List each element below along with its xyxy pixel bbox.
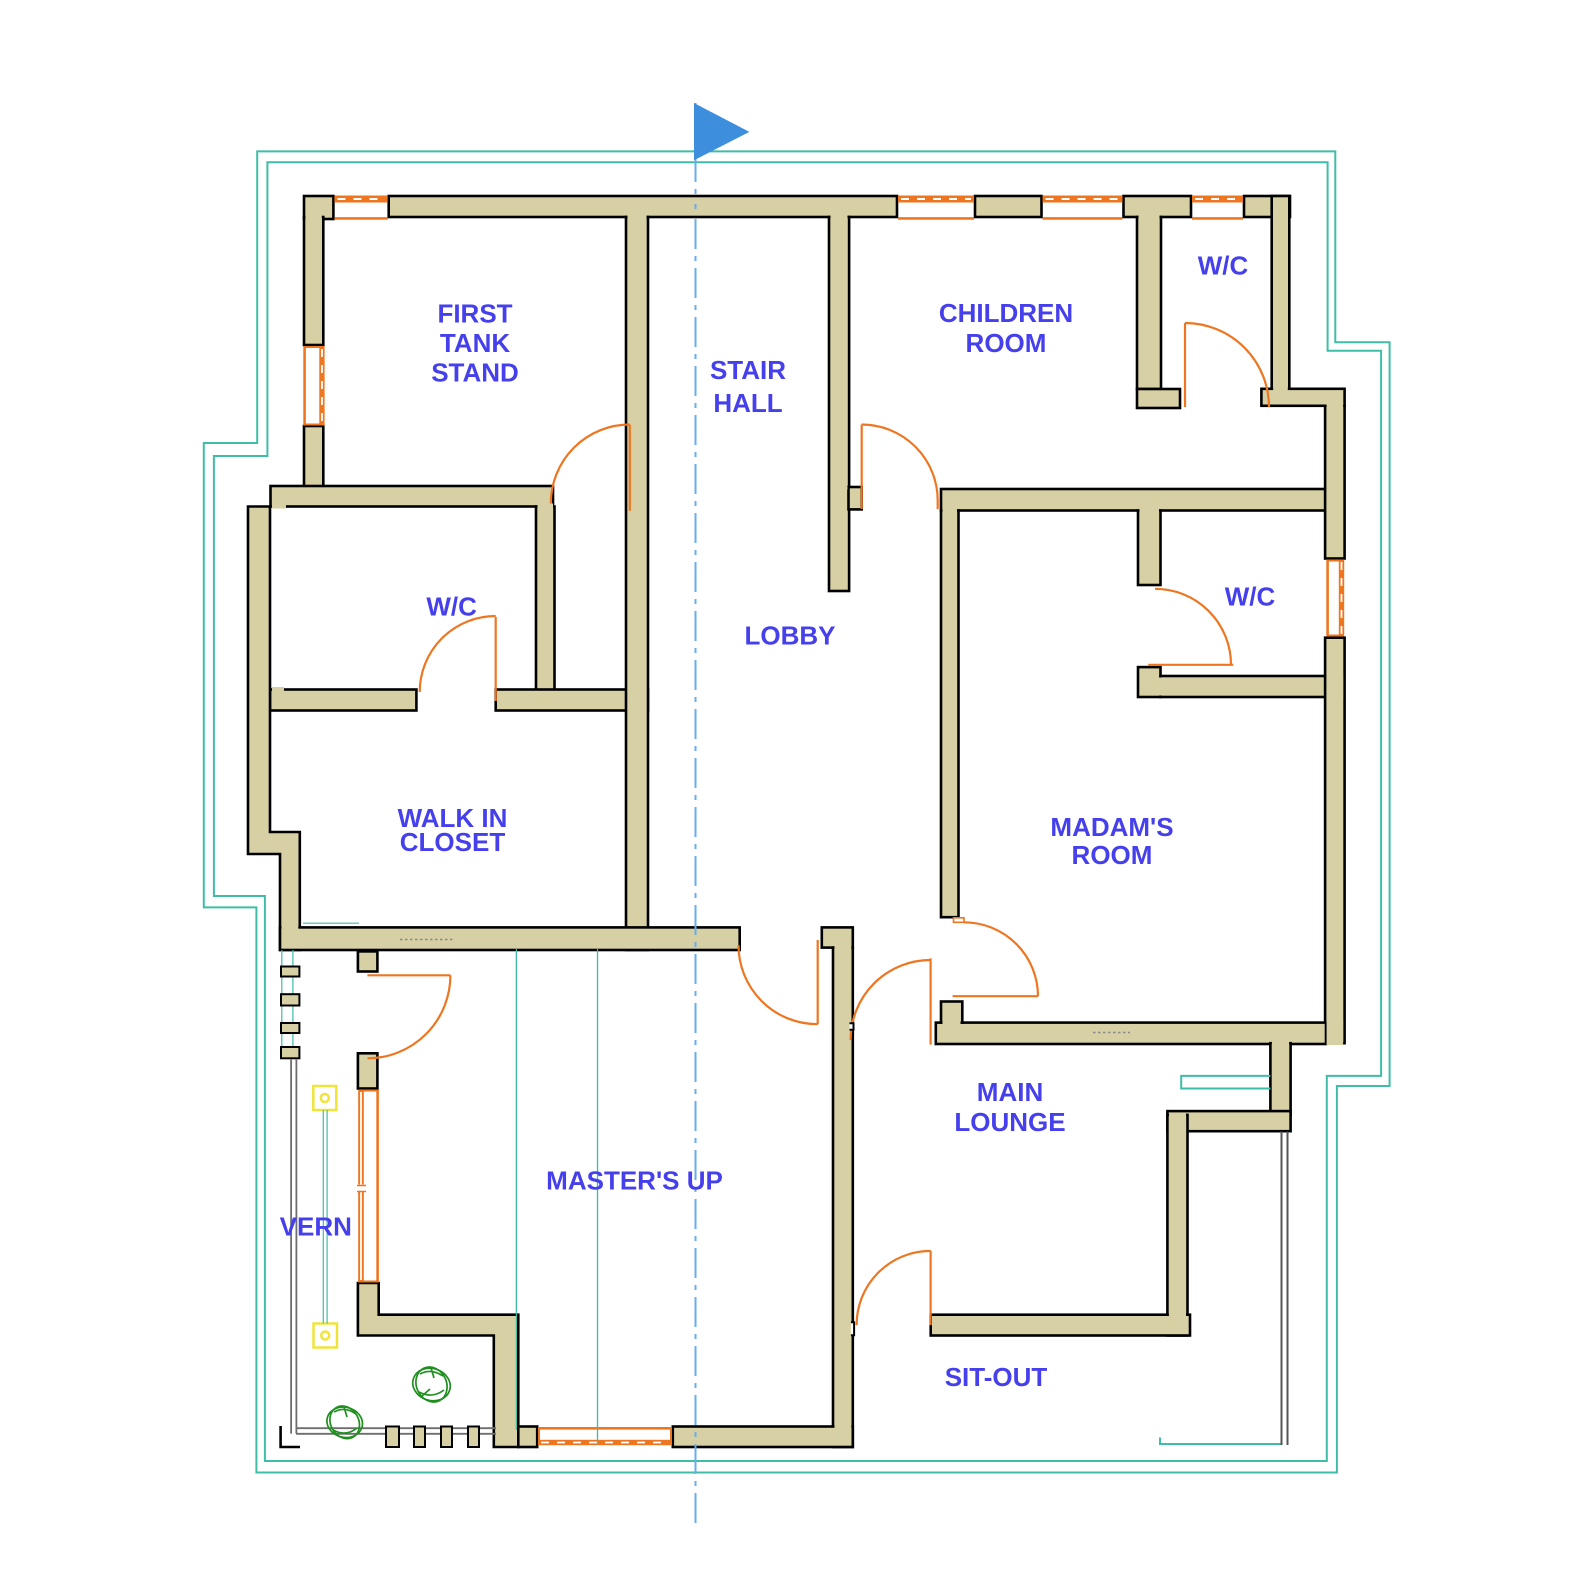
svg-text:TANK: TANK	[440, 328, 511, 358]
svg-text:CHILDREN: CHILDREN	[939, 298, 1073, 328]
svg-text:LOUNGE: LOUNGE	[954, 1107, 1065, 1137]
svg-text:W/C: W/C	[1198, 251, 1249, 281]
svg-text:ROOM: ROOM	[1072, 840, 1153, 870]
svg-text:HALL: HALL	[713, 388, 782, 418]
svg-text:W/C: W/C	[1225, 582, 1276, 612]
svg-text:FIRST: FIRST	[437, 299, 512, 329]
svg-text:MAIN: MAIN	[977, 1077, 1043, 1107]
svg-text:MADAM'S: MADAM'S	[1050, 812, 1173, 842]
svg-text:VERN: VERN	[280, 1212, 352, 1242]
svg-text:CLOSET: CLOSET	[400, 827, 506, 857]
svg-text:SIT-OUT: SIT-OUT	[945, 1362, 1048, 1392]
svg-text:MASTER'S UP: MASTER'S UP	[546, 1165, 723, 1195]
svg-text:STAND: STAND	[431, 358, 519, 388]
svg-text:W/C: W/C	[426, 592, 477, 622]
svg-text:STAIR: STAIR	[710, 355, 786, 385]
svg-text:LOBBY: LOBBY	[745, 621, 836, 651]
svg-text:ROOM: ROOM	[966, 328, 1047, 358]
